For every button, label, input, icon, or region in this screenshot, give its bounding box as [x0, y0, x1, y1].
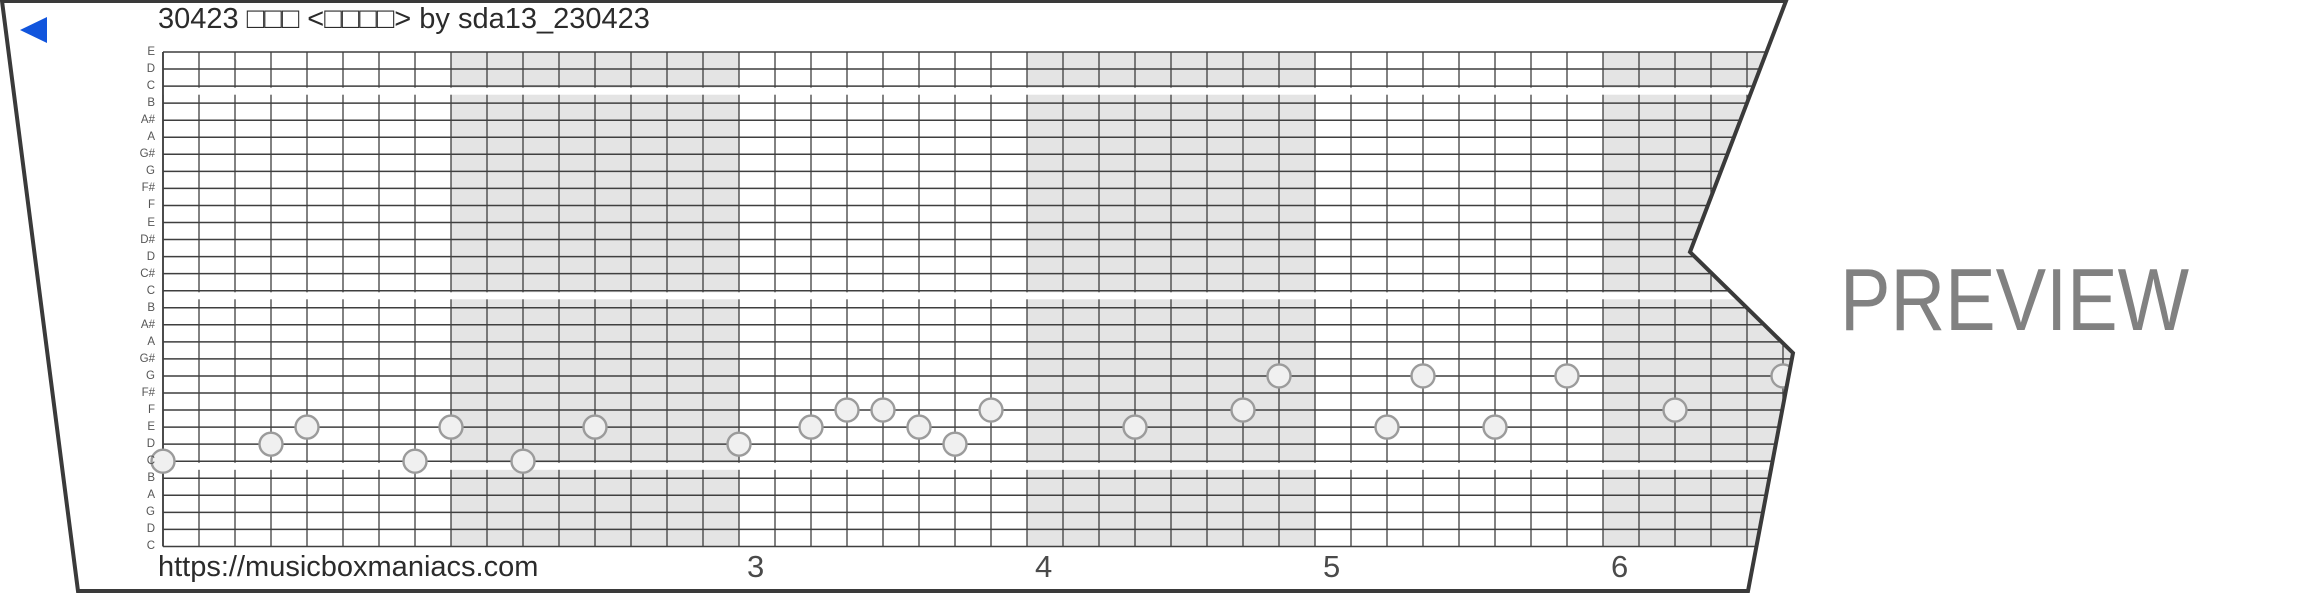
row-label: G#: [0, 147, 155, 161]
note-dot: [1124, 416, 1147, 439]
site-url-text: https://musicboxmaniacs.com: [158, 551, 538, 584]
row-label: B: [0, 471, 155, 485]
row-label: E: [0, 420, 155, 434]
row-label: D: [0, 522, 155, 536]
row-label: F: [0, 198, 155, 212]
row-label: G#: [0, 352, 155, 366]
row-label: A: [0, 488, 155, 502]
note-dot: [908, 416, 931, 439]
row-label: C: [0, 454, 155, 468]
note-dot: [296, 416, 319, 439]
row-label: F: [0, 403, 155, 417]
preview-watermark: PREVIEW: [1840, 249, 2189, 351]
note-dot: [944, 433, 967, 456]
note-dot: [1664, 399, 1687, 422]
row-label: D: [0, 62, 155, 76]
row-label: G: [0, 369, 155, 383]
note-dot: [584, 416, 607, 439]
row-label: A#: [0, 318, 155, 332]
row-label: E: [0, 45, 155, 59]
measure-number: 3: [747, 549, 764, 585]
measure-number: 6: [1611, 549, 1628, 585]
row-label: F#: [0, 181, 155, 195]
row-label: A#: [0, 113, 155, 127]
note-dot: [800, 416, 823, 439]
row-label: D#: [0, 233, 155, 247]
note-dot: [1232, 399, 1255, 422]
note-dot: [1376, 416, 1399, 439]
note-dot: [440, 416, 463, 439]
row-label: A: [0, 130, 155, 144]
note-dot: [1412, 364, 1435, 387]
row-label: C: [0, 284, 155, 298]
row-label: B: [0, 301, 155, 315]
octave-separator: [163, 88, 1820, 95]
row-label: B: [0, 96, 155, 110]
measure-number: 4: [1035, 549, 1052, 585]
row-label: D: [0, 437, 155, 451]
note-dot: [1484, 416, 1507, 439]
note-dot: [728, 433, 751, 456]
note-dot: [404, 450, 427, 473]
row-label: C: [0, 539, 155, 553]
page-title: 30423 □□□ <□□□□> by sda13_230423: [158, 3, 650, 36]
note-dot: [512, 450, 535, 473]
pitch-row-labels: EDCBA#AG#GF#FED#DC#CBA#AG#GF#FEDCBAGDC: [0, 0, 157, 597]
row-label: C: [0, 79, 155, 93]
row-label: C#: [0, 267, 155, 281]
row-label: G: [0, 505, 155, 519]
note-dot: [1556, 364, 1579, 387]
row-label: A: [0, 335, 155, 349]
note-dot: [260, 433, 283, 456]
row-label: D: [0, 250, 155, 264]
row-label: F#: [0, 386, 155, 400]
measure-number: 5: [1323, 549, 1340, 585]
row-label: G: [0, 164, 155, 178]
music-box-preview: 30423 □□□ <□□□□> by sda13_230423 EDCBA#A…: [0, 0, 2310, 597]
note-dot: [980, 399, 1003, 422]
note-dot: [836, 399, 859, 422]
note-dot: [1268, 364, 1291, 387]
row-label: E: [0, 216, 155, 230]
note-dot: [872, 399, 895, 422]
octave-separator: [163, 292, 1820, 299]
